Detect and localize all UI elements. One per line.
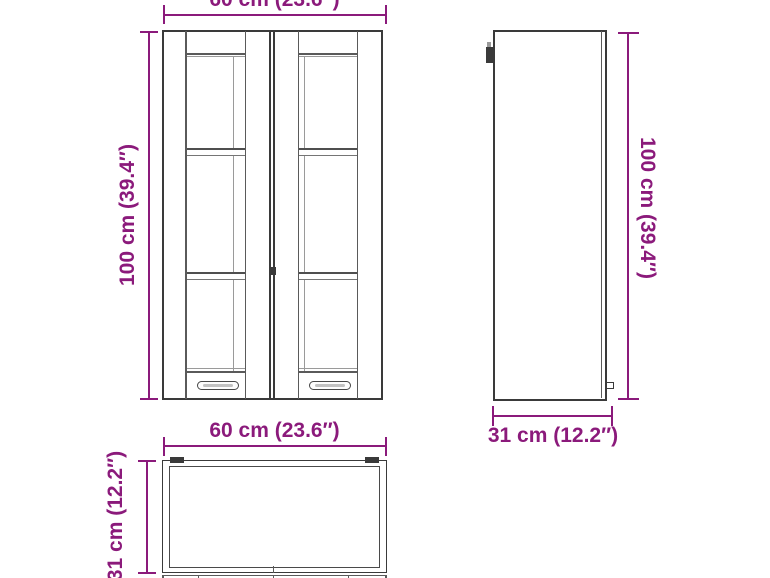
left-door-stile-line [185, 31, 187, 399]
side-back-panel-line [601, 31, 603, 398]
side-depth-dimension-tick [492, 406, 494, 426]
right-door-stile-line [298, 31, 300, 399]
side-height-dimension-line [627, 32, 629, 400]
door-gap-line [273, 31, 275, 399]
shelf-line [299, 148, 357, 156]
shelf-line [299, 272, 357, 280]
top-depth-dimension-tick [138, 460, 156, 462]
front-height-dimension-tick [140, 398, 158, 400]
right-door-top-rail-line [298, 53, 359, 55]
side-cabinet-outline [493, 30, 607, 401]
side-height-dimension-tick [618, 32, 639, 34]
right-door-glass-reflection [304, 56, 305, 371]
right-door-stile-line [357, 31, 359, 399]
side-depth-dimension-line [493, 415, 613, 417]
left-door-bottom-rail-line [185, 371, 246, 373]
side-depth-dimension-tick [611, 406, 613, 426]
right-door-glass-edge [299, 56, 357, 57]
top-width-dimension-line [163, 445, 386, 447]
side-depth-dimension-label: 31 cm (12.2″) [453, 424, 653, 448]
top-depth-dimension-line [146, 460, 148, 573]
hinge-icon [365, 457, 379, 464]
shelf-line [187, 148, 245, 156]
side-height-dimension-label: 100 cm (39.4″) [635, 108, 659, 308]
front-width-dimension-label: 60 cm (23.6″) [163, 0, 386, 12]
hinge-icon [486, 47, 493, 63]
top-width-dimension-tick [163, 437, 165, 456]
wall-bracket-detail [606, 382, 614, 390]
front-width-dimension-line [163, 14, 386, 16]
shelf-line [187, 272, 245, 280]
left-door-glass-edge [187, 368, 245, 369]
door-gap-line [269, 31, 271, 399]
door-catch-detail [269, 267, 276, 275]
top-carcass-inner-outline [169, 466, 380, 568]
right-door-handle-detail [315, 384, 345, 387]
dimension-diagram-canvas: 60 cm (23.6″) 100 cm (39.4″) 100 cm (39.… [0, 0, 770, 578]
top-depth-dimension-label: 31 cm (12.2″) [104, 416, 128, 578]
top-door-front-edge-line [162, 575, 387, 577]
left-door-stile-line [245, 31, 247, 399]
front-height-dimension-tick [140, 31, 158, 33]
right-door-glass-edge [299, 368, 357, 369]
top-width-dimension-label: 60 cm (23.6″) [163, 419, 386, 443]
left-door-top-rail-line [185, 53, 246, 55]
left-door-handle-detail [203, 384, 233, 387]
front-height-dimension-line [148, 31, 150, 399]
left-door-glass-reflection [233, 56, 234, 371]
top-width-dimension-tick [385, 437, 387, 456]
top-door-gap-tick [273, 566, 275, 573]
hinge-icon [170, 457, 184, 464]
side-height-dimension-tick [618, 398, 639, 400]
front-height-dimension-label: 100 cm (39.4″) [116, 115, 140, 315]
right-door-bottom-rail-line [298, 371, 359, 373]
hinge-icon [487, 42, 491, 47]
left-door-glass-edge [187, 56, 245, 57]
top-depth-dimension-tick [138, 572, 156, 574]
